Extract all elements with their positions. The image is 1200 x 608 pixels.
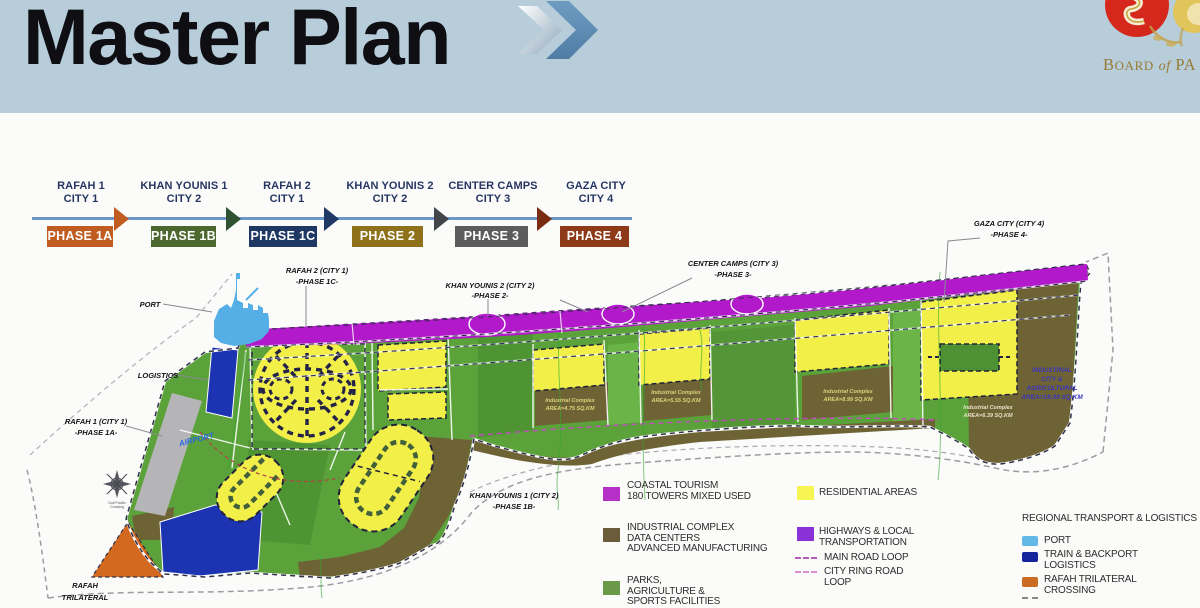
svg-text:TRILATERAL: TRILATERAL (62, 593, 109, 600)
svg-text:-PHASE 2-: -PHASE 2- (471, 291, 509, 300)
svg-text:Industrial Complex: Industrial Complex (823, 389, 873, 395)
svg-text:-PHASE 3-: -PHASE 3- (714, 270, 752, 279)
svg-text:Industrial Complex: Industrial Complex (963, 405, 1013, 411)
svg-text:RAFAH: RAFAH (72, 581, 98, 590)
svg-text:AREA=8.99 SQ.KM: AREA=8.99 SQ.KM (822, 397, 872, 403)
svg-text:INDUSTRIAL: INDUSTRIAL (1032, 367, 1071, 374)
svg-text:RAFAH 1 (CITY 1): RAFAH 1 (CITY 1) (65, 417, 128, 426)
svg-text:-PHASE 1A-: -PHASE 1A- (75, 428, 118, 437)
svg-text:RAFAH 2 (CITY 1): RAFAH 2 (CITY 1) (286, 266, 349, 275)
svg-text:AREA=4.75 SQ.KM: AREA=4.75 SQ.KM (544, 406, 594, 412)
svg-text:Industrial Complex: Industrial Complex (545, 398, 595, 404)
svg-text:AREA=19.49 SQ KM: AREA=19.49 SQ KM (1020, 394, 1083, 401)
svg-text:Crossing: Crossing (110, 505, 124, 509)
svg-text:AGRICULTURAL: AGRICULTURAL (1025, 385, 1077, 392)
svg-text:KHAN YOUNIS 2 (CITY 2): KHAN YOUNIS 2 (CITY 2) (446, 281, 535, 290)
svg-text:CITY &: CITY & (1041, 376, 1062, 383)
svg-text:-PHASE 4-: -PHASE 4- (990, 230, 1028, 239)
svg-text:PORT: PORT (140, 300, 162, 309)
svg-text:CENTER CAMPS (CITY 3): CENTER CAMPS (CITY 3) (688, 259, 779, 268)
svg-text:AREA=5.55 SQ.KM: AREA=5.55 SQ.KM (650, 398, 700, 404)
svg-text:AIRPORT: AIRPORT (177, 431, 216, 449)
svg-text:KHAN YOUNIS 1 (CITY 2): KHAN YOUNIS 1 (CITY 2) (470, 491, 559, 500)
svg-text:AREA=6.39 SQ.KM: AREA=6.39 SQ.KM (962, 413, 1012, 419)
svg-text:GAZA CITY (CITY 4): GAZA CITY (CITY 4) (974, 219, 1045, 228)
svg-text:LOGISTICS: LOGISTICS (138, 371, 178, 380)
svg-text:-PHASE 1B-: -PHASE 1B- (493, 502, 536, 511)
svg-text:Industrial Complex: Industrial Complex (651, 390, 701, 396)
svg-text:-PHASE 1C-: -PHASE 1C- (296, 277, 339, 286)
